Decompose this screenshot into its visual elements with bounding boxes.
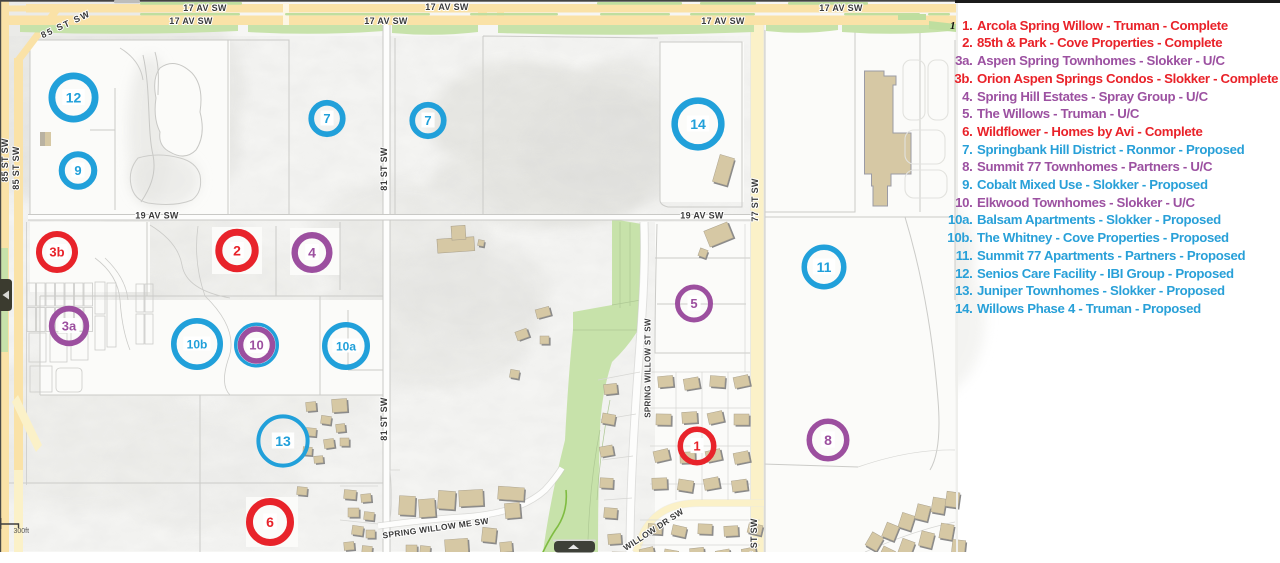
svg-text:17 AV SW: 17 AV SW — [169, 16, 213, 26]
svg-text:10a: 10a — [336, 339, 356, 353]
svg-text:85 ST SW: 85 ST SW — [11, 146, 21, 190]
svg-text:17 AV SW: 17 AV SW — [183, 3, 227, 13]
svg-text:3b: 3b — [49, 245, 64, 260]
svg-text:6: 6 — [266, 514, 274, 530]
svg-text:3a: 3a — [62, 319, 77, 334]
svg-text:19 AV SW: 19 AV SW — [680, 211, 724, 221]
svg-text:9: 9 — [74, 163, 81, 178]
svg-text:17 AV SW: 17 AV SW — [425, 2, 469, 12]
svg-text:1: 1 — [693, 439, 700, 454]
svg-text:17 AV SW: 17 AV SW — [819, 3, 863, 13]
svg-text:12: 12 — [66, 90, 82, 106]
svg-text:SPRING WILLOW ST SW: SPRING WILLOW ST SW — [644, 318, 653, 418]
svg-text:7: 7 — [424, 113, 431, 128]
svg-text:13: 13 — [275, 433, 291, 449]
svg-text:77 ST SW: 77 ST SW — [750, 178, 760, 222]
svg-text:8: 8 — [824, 432, 832, 448]
svg-text:7: 7 — [323, 111, 330, 126]
svg-text:19 AV SW: 19 AV SW — [135, 211, 179, 221]
svg-text:10b: 10b — [187, 337, 208, 351]
svg-text:300ft: 300ft — [14, 528, 30, 535]
svg-text:14: 14 — [690, 116, 706, 132]
svg-text:5: 5 — [690, 296, 697, 311]
svg-text:11: 11 — [817, 259, 832, 275]
svg-text:4: 4 — [308, 245, 316, 261]
svg-text:2: 2 — [233, 243, 241, 259]
svg-text:85 ST SW: 85 ST SW — [0, 138, 10, 182]
svg-text:17 AV SW: 17 AV SW — [364, 16, 408, 26]
svg-text:17 AV SW: 17 AV SW — [701, 16, 745, 26]
svg-text:81 ST SW: 81 ST SW — [379, 397, 389, 441]
svg-text:10: 10 — [249, 338, 263, 353]
svg-text:81 ST SW: 81 ST SW — [379, 147, 389, 191]
